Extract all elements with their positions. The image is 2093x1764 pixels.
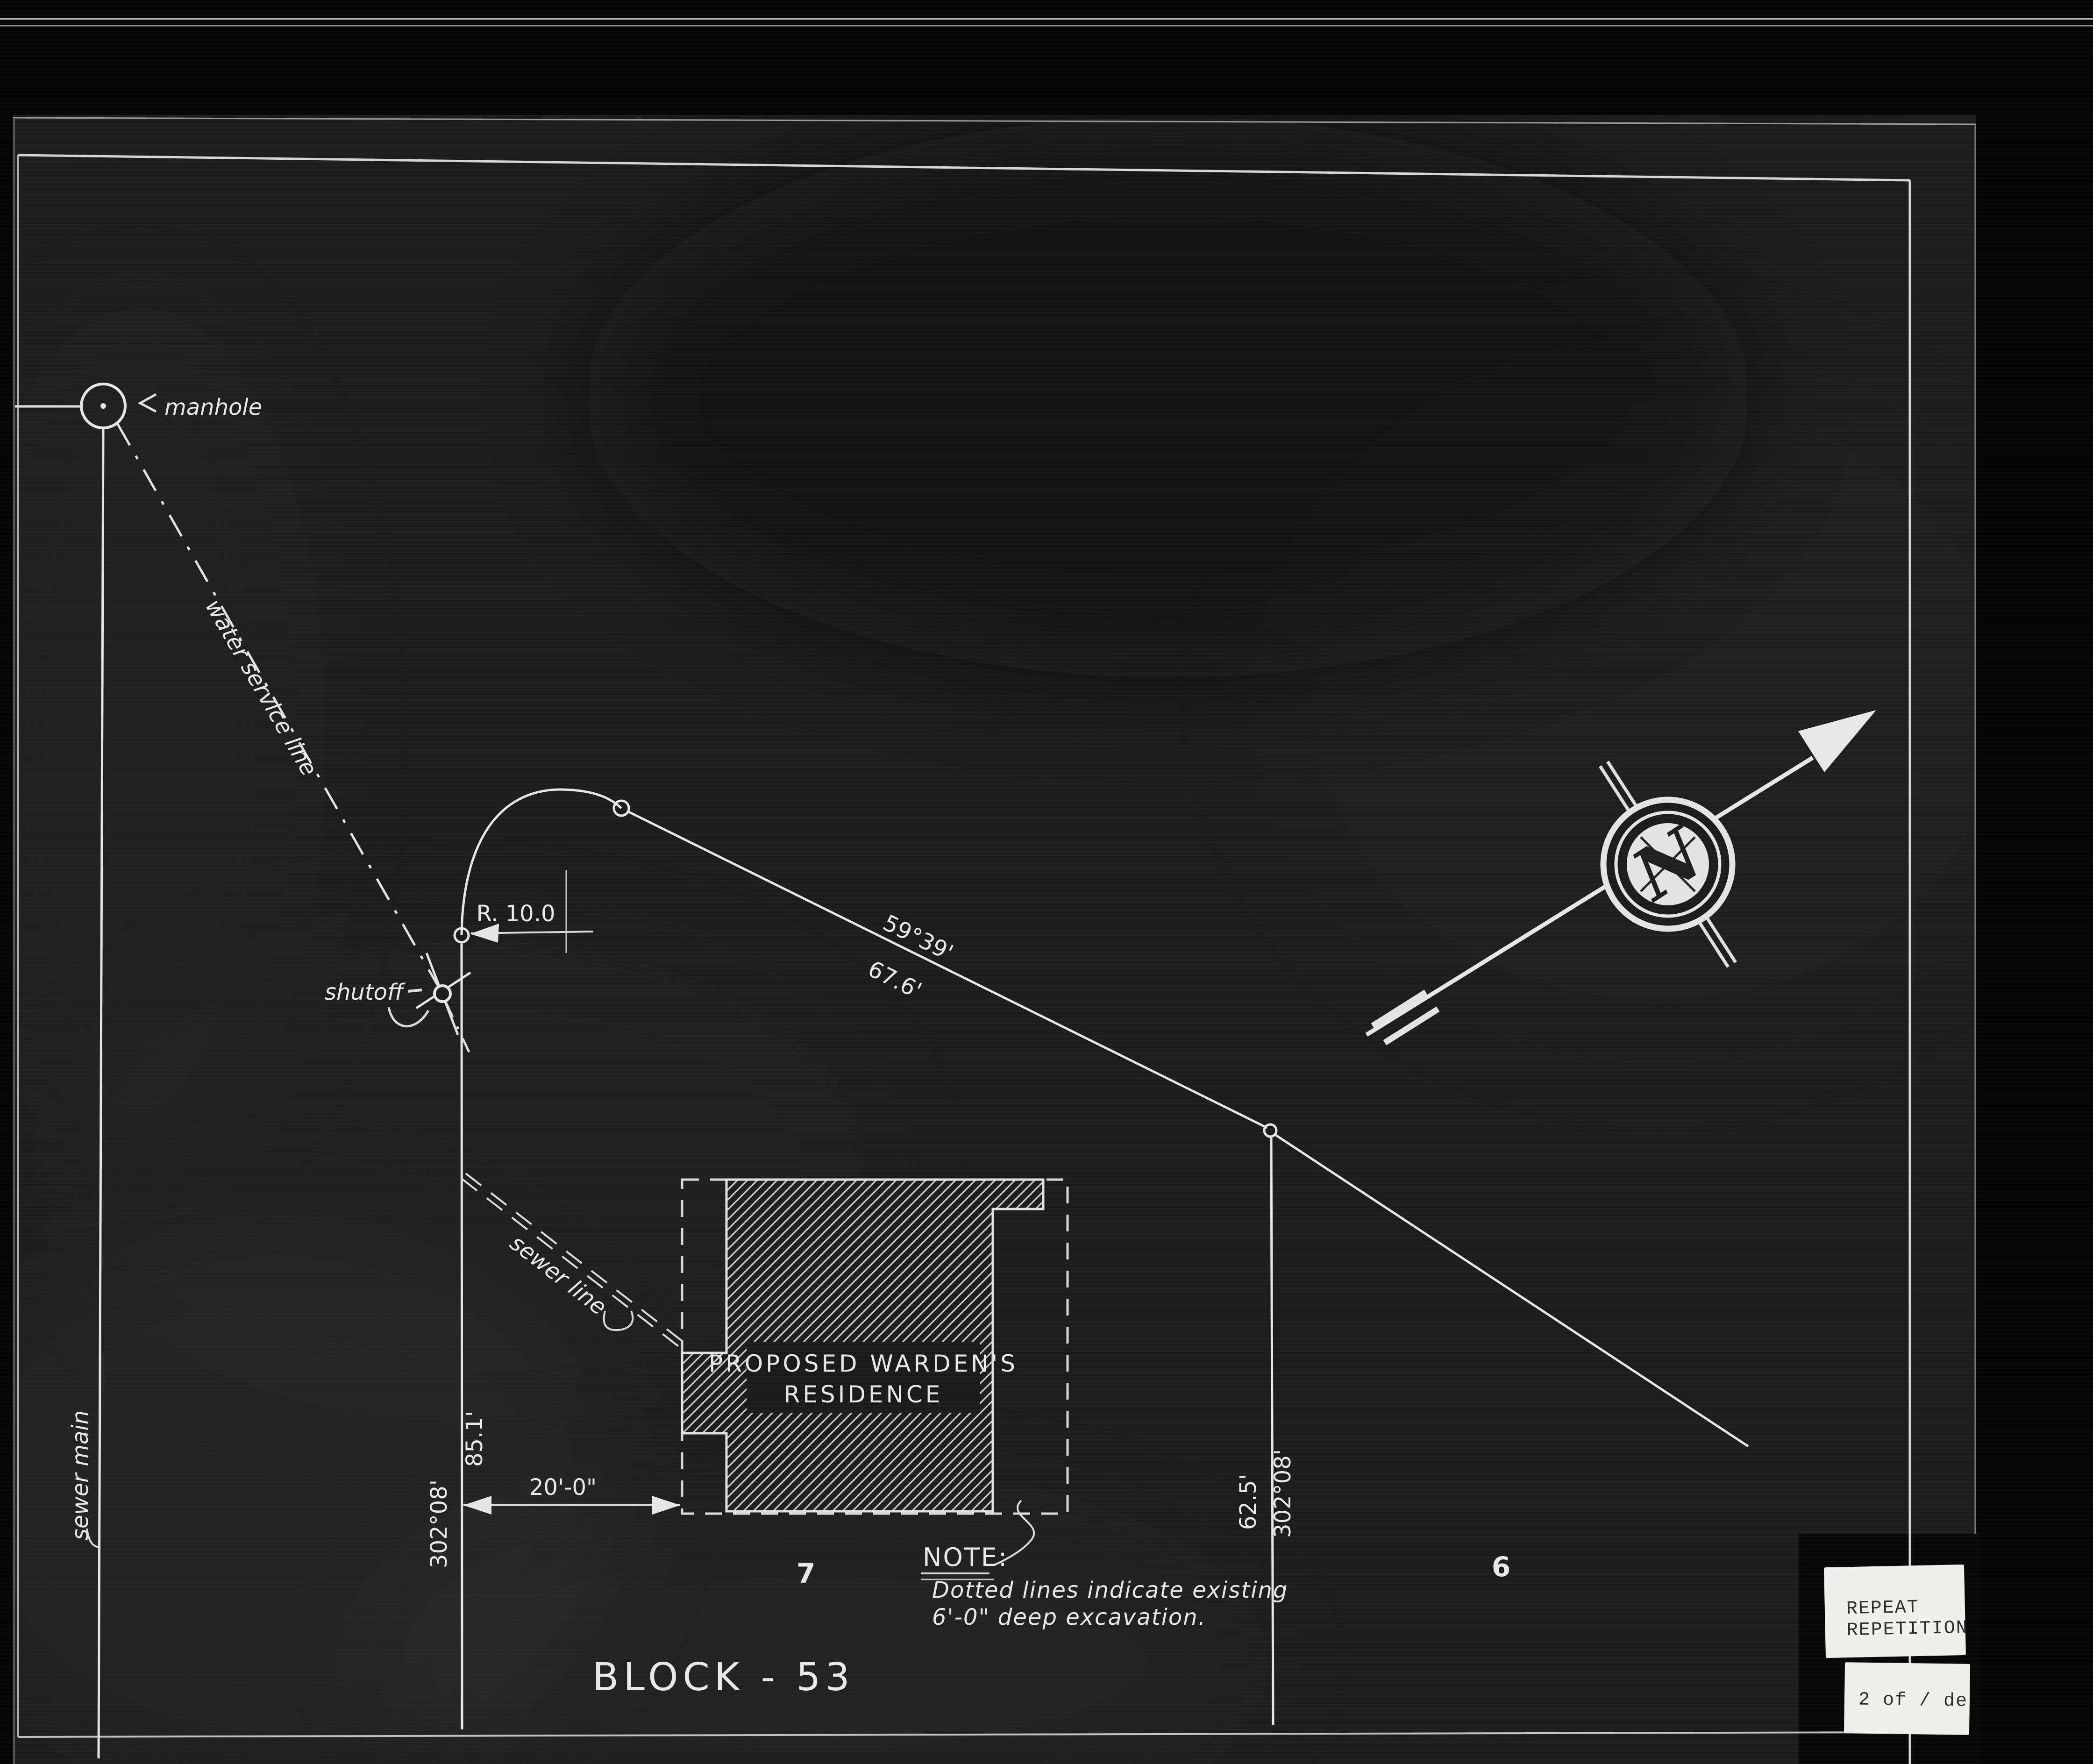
manhole-center-dot <box>100 403 106 409</box>
east-bearing-label: 302°08' <box>1270 1449 1296 1538</box>
block-title: BLOCK - 53 <box>592 1655 854 1700</box>
stamp-repeat-line1: REPEAT <box>1846 1597 1919 1620</box>
lot-number-6: 6 <box>1492 1551 1510 1583</box>
east-length-label: 62.5' <box>1235 1474 1261 1530</box>
note-title: NOTE: <box>923 1543 1008 1572</box>
note-line2: 6'-0" deep excavation. <box>932 1604 1206 1630</box>
lot-line-west <box>462 942 462 1729</box>
shutoff-tick <box>408 990 422 991</box>
site-plan-drawing: manhole sewer main water service line sh… <box>0 0 2093 1764</box>
lot-number-7: 7 <box>797 1558 815 1589</box>
shutoff-symbol <box>434 986 450 1002</box>
radius-label: R. 10.0 <box>476 901 555 927</box>
west-length-label: 85.1' <box>462 1411 488 1467</box>
building-label-line2: RESIDENCE <box>784 1381 943 1408</box>
west-bearing-label: 302°08' <box>426 1479 452 1568</box>
stamp-page-card: 2 of / de <box>1844 1662 1970 1735</box>
shutoff-label: shutoff <box>325 979 406 1005</box>
sewer-main-label: sewer main <box>67 1410 93 1540</box>
building-label-line1: PROPOSED WARDEN'S <box>709 1350 1018 1377</box>
note-line1: Dotted lines indicate existing <box>932 1577 1288 1603</box>
blueprint-photo: manhole sewer main water service line sh… <box>0 0 2093 1764</box>
stamp-repeat-line2: REPETITION <box>1846 1618 1968 1641</box>
setback-label: 20'-0" <box>529 1474 597 1501</box>
manhole-label: manhole <box>164 394 262 420</box>
stamp-repeat-card: REPEAT REPETITION <box>1824 1565 1969 1658</box>
stamp-page-text: 2 of / de <box>1858 1690 1968 1712</box>
